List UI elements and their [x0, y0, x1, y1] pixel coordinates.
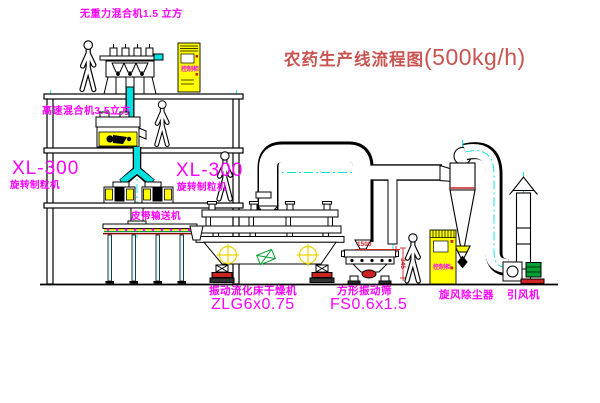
dryer-foot-left — [210, 265, 234, 283]
label-dryer-model: ZLG6x0.75 — [211, 297, 295, 313]
person-ground — [407, 234, 418, 281]
label-cabinet-top: 控制柜 — [181, 67, 199, 73]
belt-conveyor — [103, 224, 197, 284]
label-belt-conveyor: 皮带输送机 — [131, 212, 181, 222]
square-sieve — [342, 250, 399, 284]
label-dim-width: 1500 — [357, 242, 371, 249]
flow-diagram-canvas: 农药生产线流程图(500kg/h) 无重力混合机1.5 立方 高速混合机3.5立… — [0, 0, 600, 403]
gravity-mixer — [100, 44, 163, 95]
person-roof — [82, 41, 94, 90]
label-cyclone: 旋风除尘器 — [439, 290, 494, 301]
label-sieve-name: 方形振动筛 — [337, 286, 392, 297]
label-sieve-model: FS0.6x1.5 — [330, 297, 407, 313]
person-floor2 — [157, 101, 168, 145]
granulator-left — [104, 182, 135, 203]
diagram-title-text: 农药生产线流程图 — [284, 46, 424, 70]
diagram-title: 农药生产线流程图(500kg/h) — [284, 44, 526, 71]
high-speed-mixer — [96, 112, 146, 147]
label-gravity-mixer: 无重力混合机1.5 立方 — [80, 10, 183, 20]
granulator-right — [142, 182, 173, 203]
label-fan: 引风机 — [507, 290, 540, 301]
label-xl300-right-name: 旋转制粒机 — [177, 183, 227, 193]
dryer-foot-right — [310, 265, 334, 283]
label-xl300-left-model: XL-300 — [12, 159, 79, 178]
diagram-title-capacity: (500kg/h) — [424, 44, 526, 71]
control-cabinet-right — [430, 230, 456, 284]
label-cabinet-right: 控制柜 — [433, 265, 451, 271]
label-dim-height: 345 — [399, 258, 406, 269]
label-xl300-right-model: XL-300 — [176, 161, 243, 180]
label-xl300-left-name: 旋转制粒机 — [10, 181, 60, 191]
label-dryer-name: 振动流化床干燥机 — [209, 286, 297, 297]
label-high-speed-mixer: 高速混合机3.5立方 — [42, 107, 131, 117]
